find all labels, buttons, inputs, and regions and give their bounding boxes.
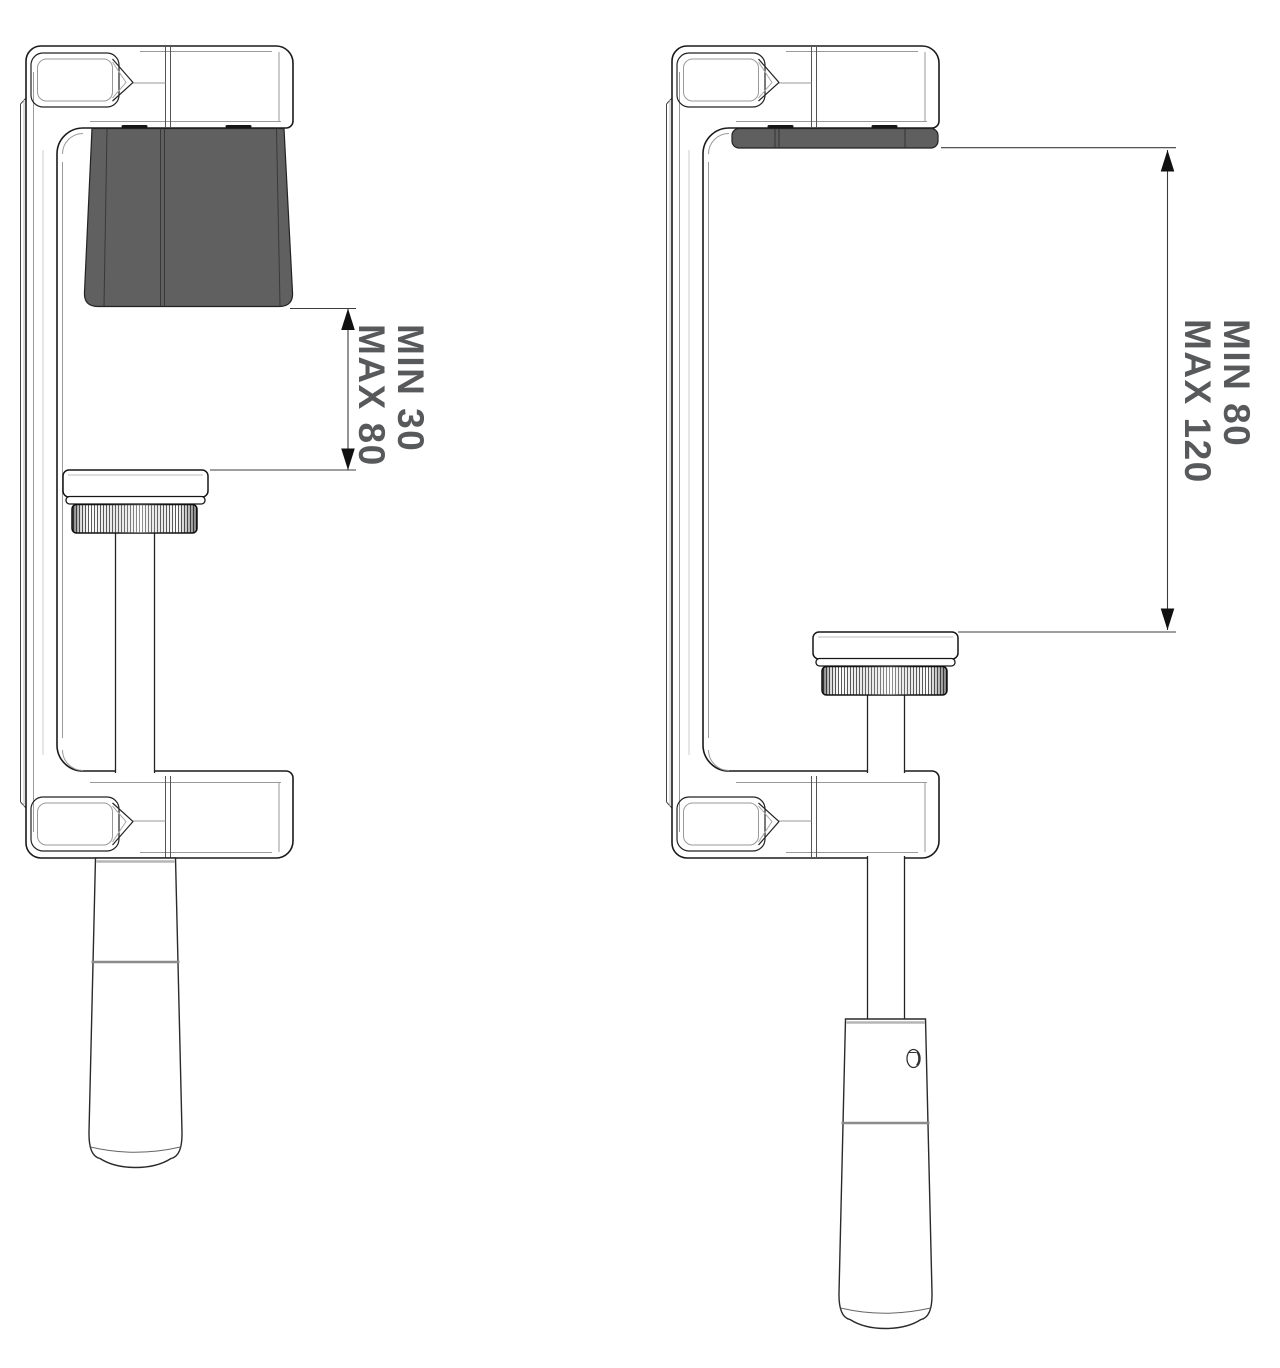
dimension-label-min: MIN 30 bbox=[390, 324, 431, 452]
dimension-label-max: MAX 80 bbox=[351, 324, 392, 467]
handle-set-screw bbox=[907, 1050, 920, 1068]
dimension-right: MIN 80 MAX 120 bbox=[941, 148, 1257, 632]
dimension-label-min: MIN 80 bbox=[1216, 319, 1257, 447]
screw-pad-and-knurled-nut bbox=[63, 470, 208, 533]
arrow-down-icon bbox=[1161, 609, 1175, 631]
clamp-handle bbox=[89, 858, 182, 1168]
left-clamp-view: MIN 30 MAX 80 bbox=[21, 46, 432, 1168]
arrow-up-icon bbox=[1161, 150, 1175, 172]
screw-pad-and-knurled-nut bbox=[813, 632, 958, 695]
clamp-screw-rod bbox=[868, 694, 905, 1020]
thick-rubber-pad bbox=[84, 129, 292, 307]
dimension-label-max: MAX 120 bbox=[1177, 319, 1218, 484]
clamp-screw-rod bbox=[116, 533, 155, 773]
thin-pad-strip bbox=[732, 129, 938, 149]
clamp-technical-drawing: MIN 30 MAX 80 bbox=[0, 0, 1280, 1368]
right-clamp-view: MIN 80 MAX 120 bbox=[667, 46, 1258, 1329]
dimension-left: MIN 30 MAX 80 bbox=[210, 309, 431, 471]
